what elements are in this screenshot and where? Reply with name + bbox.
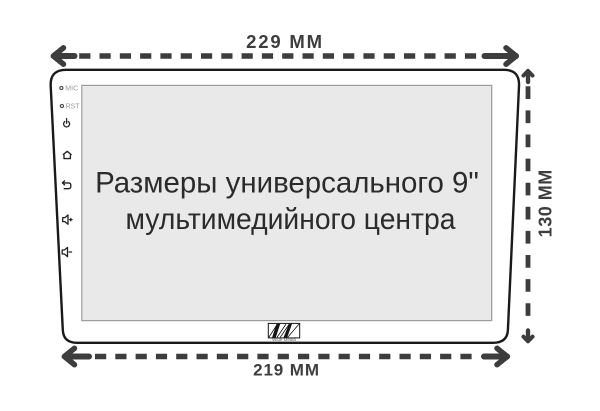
svg-text:RST: RST [66,104,81,111]
svg-text:мультимедийного центра: мультимедийного центра [126,203,457,236]
svg-text:Размеры универсального 9": Размеры универсального 9" [95,166,479,199]
svg-text:Wide Media: Wide Media [272,337,296,342]
svg-text:130 ММ: 130 ММ [536,169,556,237]
svg-text:219 ММ: 219 ММ [253,361,320,380]
svg-text:MIC: MIC [65,86,78,93]
svg-text:229 ММ: 229 ММ [246,31,324,52]
